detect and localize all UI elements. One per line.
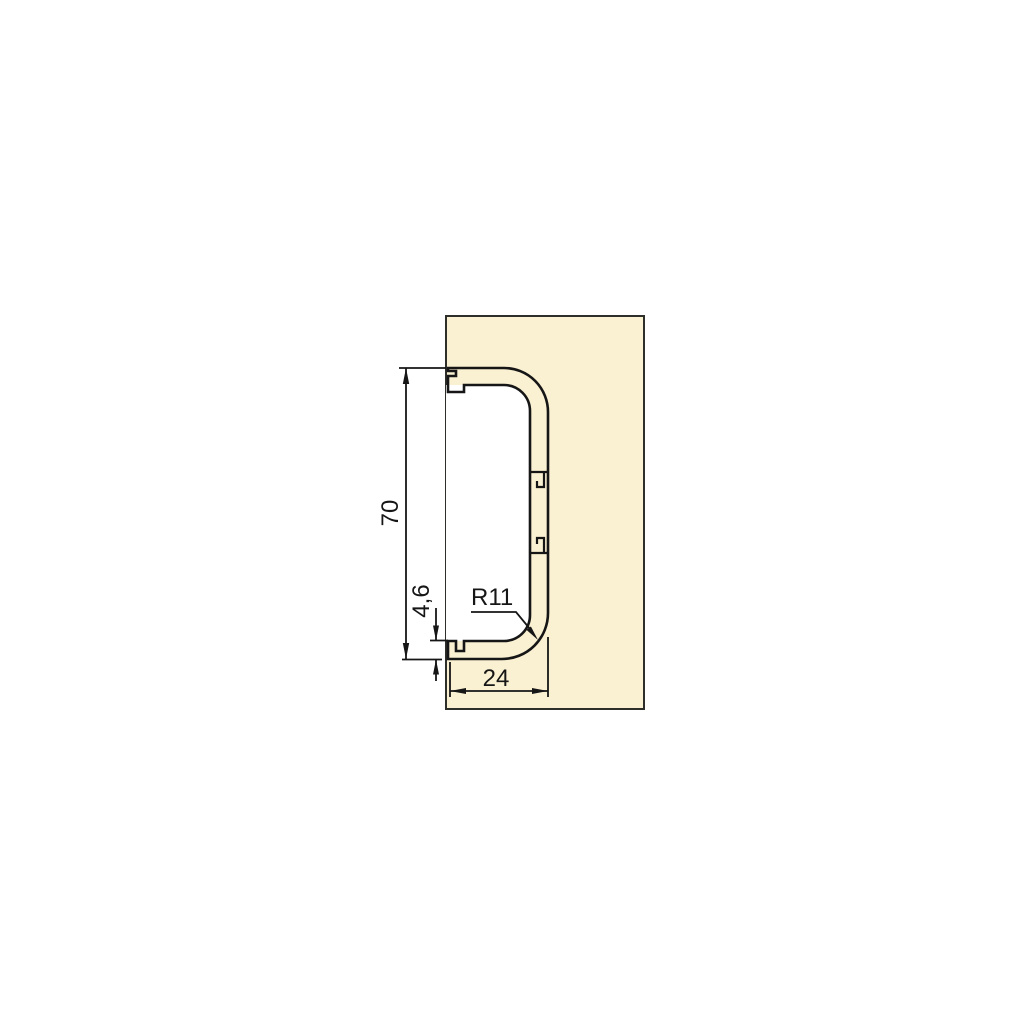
technical-drawing: 70 4,6 R11 24 [0, 0, 1024, 1024]
arrowhead-down [403, 643, 409, 659]
dim-height-label: 70 [377, 500, 404, 527]
arrowhead-up [403, 368, 409, 384]
arrowhead-down-small [433, 626, 439, 641]
dim-thickness-label: 4,6 [408, 584, 435, 617]
dim-depth-label: 24 [483, 665, 510, 692]
drawing-canvas: 70 4,6 R11 24 [0, 0, 1024, 1024]
arrowhead-up-small [433, 660, 439, 675]
dim-radius-label: R11 [471, 584, 513, 611]
dim-flange-thickness: 4,6 [408, 584, 448, 681]
